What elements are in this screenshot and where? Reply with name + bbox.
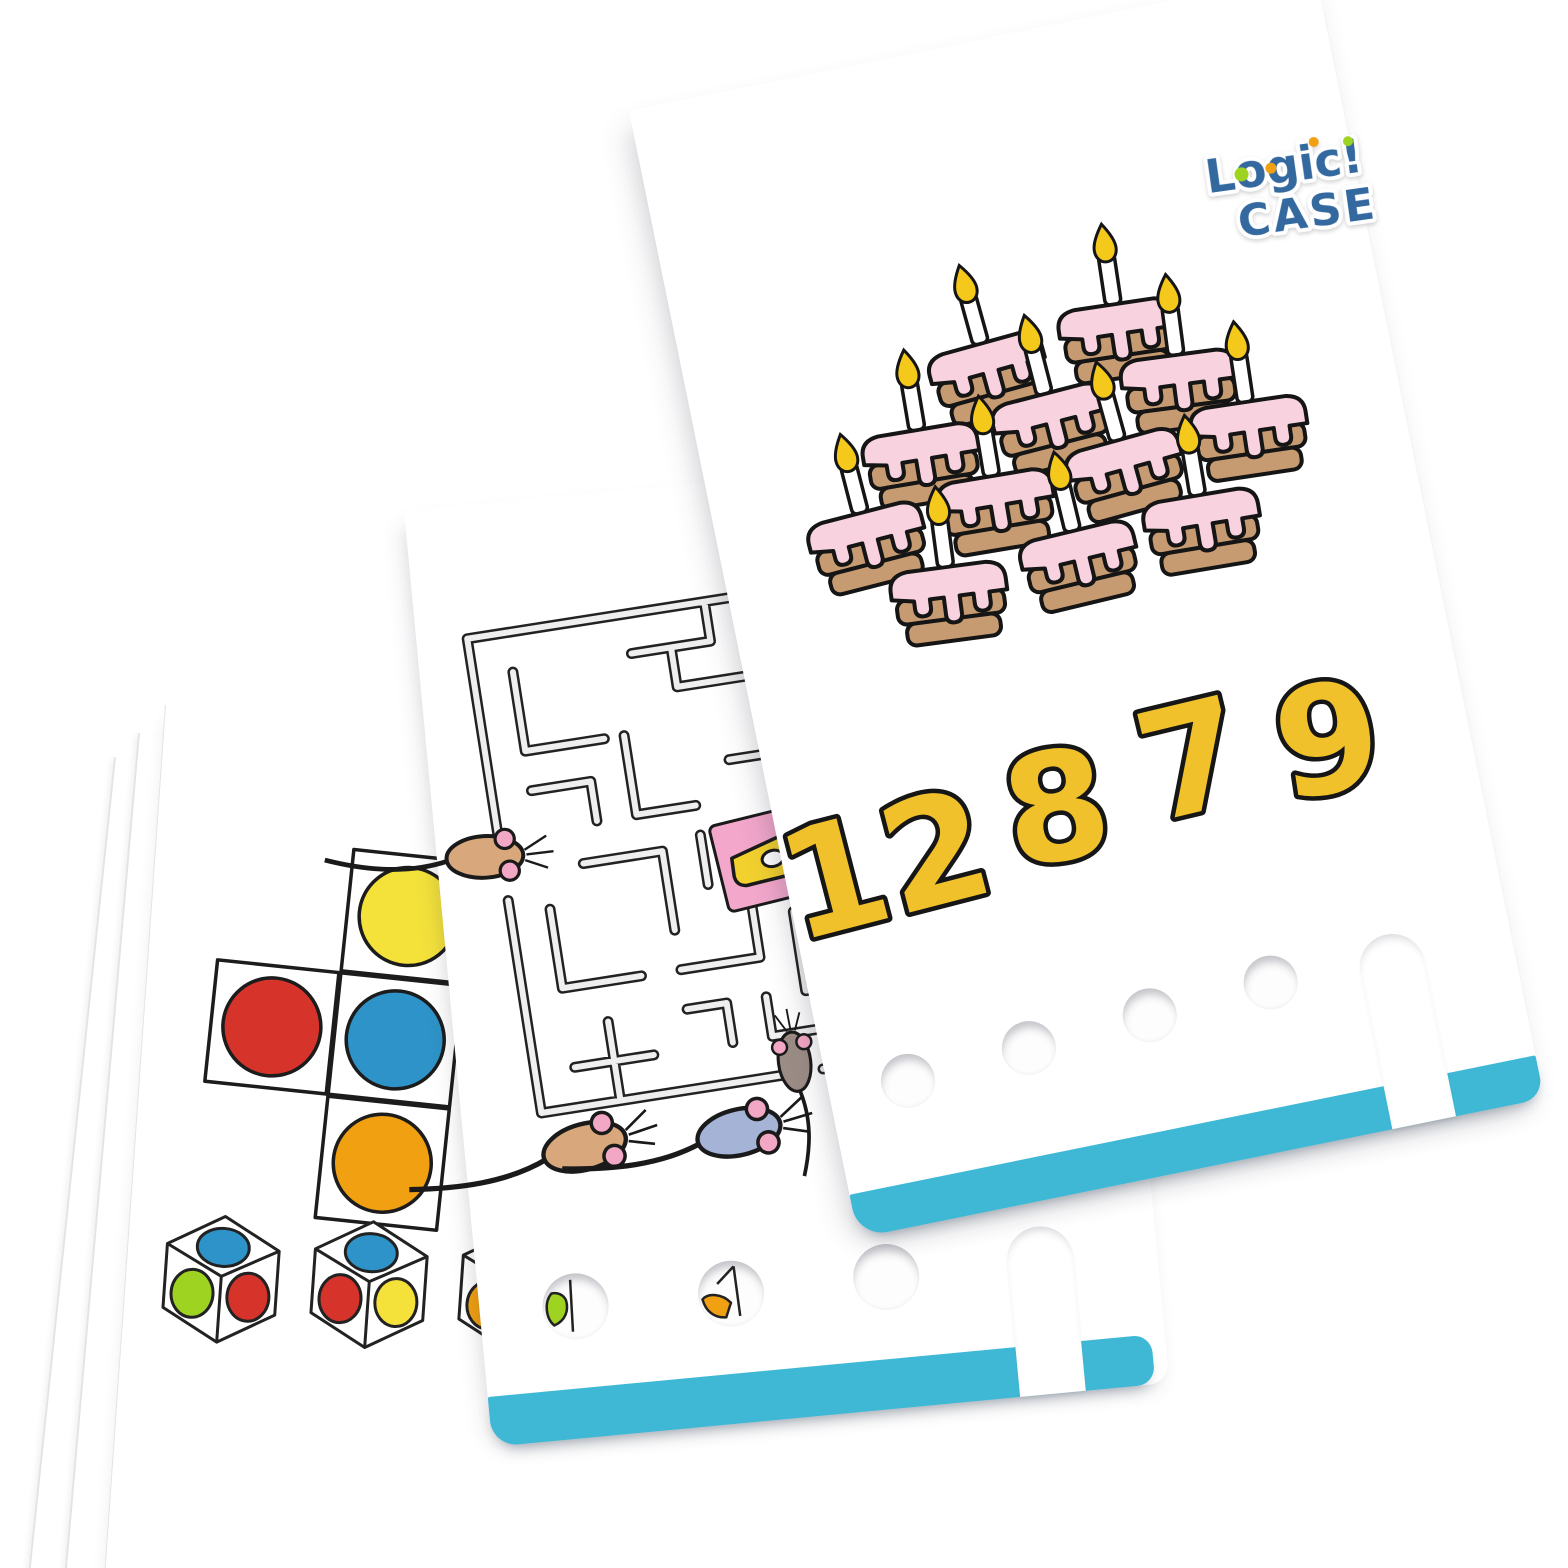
die-option-1 bbox=[161, 1213, 282, 1347]
punched-hole bbox=[695, 1258, 767, 1330]
answer-8: 8 bbox=[991, 714, 1123, 903]
answer-7: 7 bbox=[1121, 664, 1263, 858]
answer-options: 12 8 7 9 bbox=[753, 635, 1409, 978]
die-option-2 bbox=[309, 1218, 430, 1352]
cube-net bbox=[192, 837, 475, 1231]
answer-9: 9 bbox=[1263, 648, 1392, 836]
punched-hole bbox=[540, 1270, 612, 1342]
logic-case-cards-scene: 12 8 7 9 Logic! CASE bbox=[0, 0, 1568, 1568]
answer-12: 12 bbox=[762, 756, 1008, 977]
